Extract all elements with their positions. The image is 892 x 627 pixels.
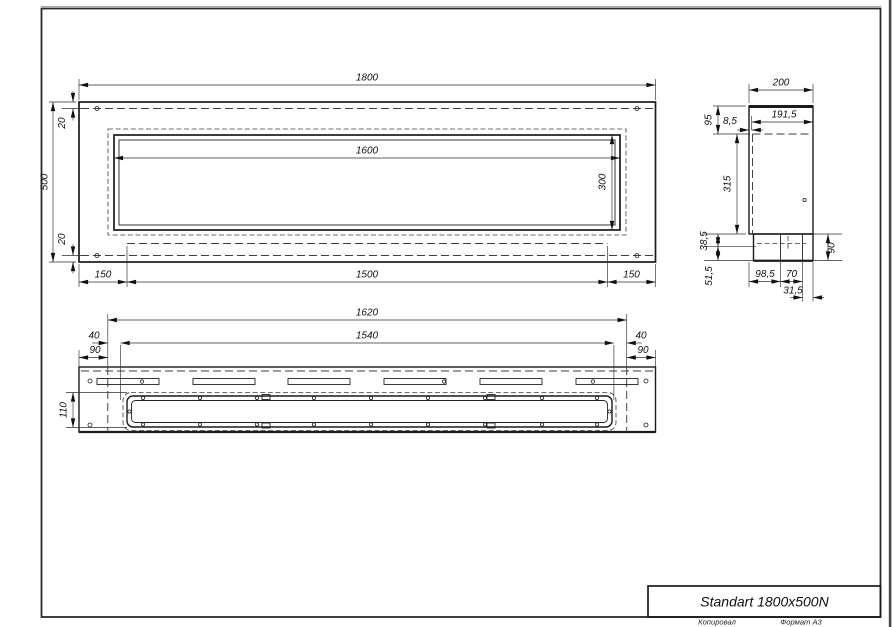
- dim-front-overall-width: 1800: [356, 73, 379, 84]
- drawing-sheet: 1800 500 20 20 1600 300 150 1500 150: [0, 0, 892, 627]
- dim-side-base-c: 31,5: [783, 286, 803, 297]
- dim-bottom-right-cap: 90: [637, 345, 649, 356]
- dim-bottom-right-offset: 40: [635, 331, 647, 342]
- title-block: Standart 1800x500N Копировал Формат А3: [648, 586, 881, 627]
- tray-clips: [262, 395, 495, 429]
- bottom-view: 1620 1540 40 90 40 90 110: [59, 308, 656, 433]
- dim-side-front-lip: 8,5: [723, 116, 737, 127]
- screw-hole: [644, 423, 648, 427]
- footer-copied-label: Копировал: [698, 618, 736, 627]
- dim-bottom-left-cap: 90: [89, 345, 101, 356]
- dim-side-middle-section: 315: [723, 175, 734, 192]
- screw-hole: [442, 380, 445, 383]
- dim-front-opening-width: 1600: [356, 146, 379, 157]
- dim-side-ledge-height: 38,5: [699, 231, 710, 251]
- burner-tray-inner: [132, 401, 608, 423]
- footer-format-label: Формат А3: [780, 618, 822, 627]
- dim-front-left-margin: 150: [95, 270, 112, 281]
- dim-front-center-span: 1500: [356, 270, 379, 281]
- dim-side-base-height: 51,5: [704, 266, 715, 286]
- window-edge: [889, 0, 892, 627]
- technical-drawing: 1800 500 20 20 1600 300 150 1500 150: [0, 0, 892, 627]
- side-body: [749, 106, 813, 234]
- pin-hole: [803, 198, 806, 201]
- side-tray: [754, 234, 814, 261]
- screw-hole: [644, 379, 648, 383]
- dim-bottom-mount-width: 1620: [356, 308, 379, 319]
- dim-bottom-inner-width: 1540: [356, 331, 379, 342]
- vent-slot: [193, 379, 255, 385]
- front-outer-body: [79, 102, 656, 262]
- vent-slot: [480, 379, 542, 385]
- dim-front-right-margin: 150: [623, 270, 640, 281]
- dim-side-base-a: 98,5: [755, 269, 775, 280]
- side-view: 200 191,5 8,5 95 315 38,5 51,5 90: [699, 78, 842, 302]
- dim-side-inner-depth: 191,5: [771, 110, 796, 121]
- screw-hole: [88, 379, 92, 383]
- vent-slot: [576, 379, 638, 385]
- drawing-title: Standart 1800x500N: [700, 594, 829, 610]
- screw-hole: [591, 380, 594, 383]
- dim-bottom-tray-depth: 110: [59, 402, 70, 418]
- screw-hole: [88, 423, 92, 427]
- dim-side-top-section: 95: [704, 114, 715, 126]
- front-view: 1800 500 20 20 1600 300 150 1500 150: [40, 73, 656, 288]
- vent-slot: [384, 379, 446, 385]
- dim-front-bottom-inset: 20: [57, 233, 68, 246]
- dim-side-base-b: 70: [786, 269, 798, 280]
- dim-front-top-inset: 20: [57, 117, 68, 130]
- dim-side-tray-height: 90: [827, 242, 838, 254]
- dim-front-opening-height: 300: [598, 173, 609, 190]
- side-top-edge: [749, 105, 813, 108]
- vent-slot: [288, 379, 350, 385]
- dim-side-depth: 200: [772, 78, 790, 89]
- dim-bottom-left-offset: 40: [88, 331, 100, 342]
- drawing-frame: [42, 9, 881, 618]
- vent-slot: [97, 379, 159, 385]
- dim-front-overall-height: 500: [40, 173, 51, 190]
- screw-hole: [140, 380, 143, 383]
